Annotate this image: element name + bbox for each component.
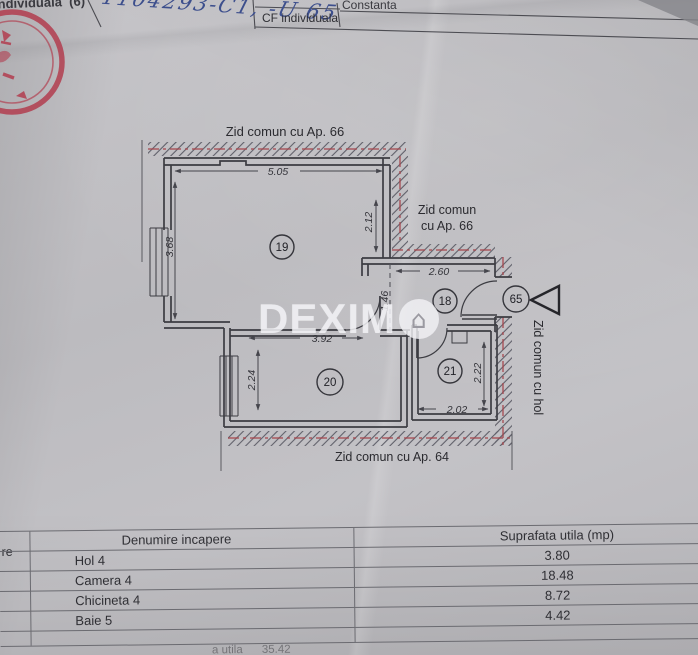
room-number-hol: 18: [439, 296, 452, 308]
wall-label-right-1: Zid comun: [418, 203, 476, 217]
dim-camera-left-depth: 3.68: [164, 237, 176, 258]
room-area: 18.48: [355, 563, 698, 587]
watermark-o-house-icon: ⌂: [399, 299, 439, 339]
room-number-baie: 21: [444, 366, 457, 378]
room-name: Baie 5: [0, 608, 355, 631]
dim-chicineta-depth: 2.24: [246, 370, 258, 392]
room-area: 4.42: [355, 603, 698, 627]
scanned-document-page: { "header": { "left_partial_label": "ind…: [0, 0, 698, 655]
cf-label: CF individuala: [262, 11, 338, 25]
room-name: Hol 4: [0, 548, 355, 571]
room-number-camera: 19: [276, 242, 289, 254]
bath-niche: [452, 331, 467, 343]
room-walls: [164, 158, 512, 427]
county-label: Constanta: [342, 0, 397, 12]
room-area: 3.80: [355, 543, 698, 567]
room-number-chicineta: 20: [324, 377, 337, 389]
column-header-area: Suprafata utila (mp): [354, 523, 698, 547]
entrance-arrow-icon: [531, 286, 559, 314]
dim-camera-width: 5.05: [268, 166, 289, 178]
dim-camera-right-depth: 2.12: [363, 212, 375, 234]
table-footer-partial: a utila 35.42: [212, 644, 291, 655]
apartment-number: 65: [510, 294, 523, 306]
column-header-name: Denumire incapere: [0, 528, 355, 551]
wall-label-right-2: cu Ap. 66: [421, 219, 473, 233]
wall-label-bottom: Zid comun cu Ap. 64: [335, 450, 449, 464]
dim-baie-width: 2.02: [446, 404, 468, 416]
dim-hol-width: 2.60: [428, 266, 450, 278]
wall-label-hall: Zid comun cu hol: [531, 320, 545, 415]
room-name: Chicineta 4: [0, 588, 355, 611]
watermark-text: DEXIM: [258, 295, 396, 343]
stamp-icon: [0, 12, 62, 112]
area-table: re Denumire incapere Suprafata utila (mp…: [0, 523, 698, 647]
room-name: Camera 4: [0, 568, 355, 591]
watermark: DEXIM ⌂: [258, 296, 439, 342]
dim-baie-depth: 2.22: [472, 363, 484, 385]
hatched-walls: [148, 142, 512, 446]
wall-label-top: Zid comun cu Ap. 66: [226, 124, 345, 139]
room-area: 8.72: [355, 583, 698, 607]
